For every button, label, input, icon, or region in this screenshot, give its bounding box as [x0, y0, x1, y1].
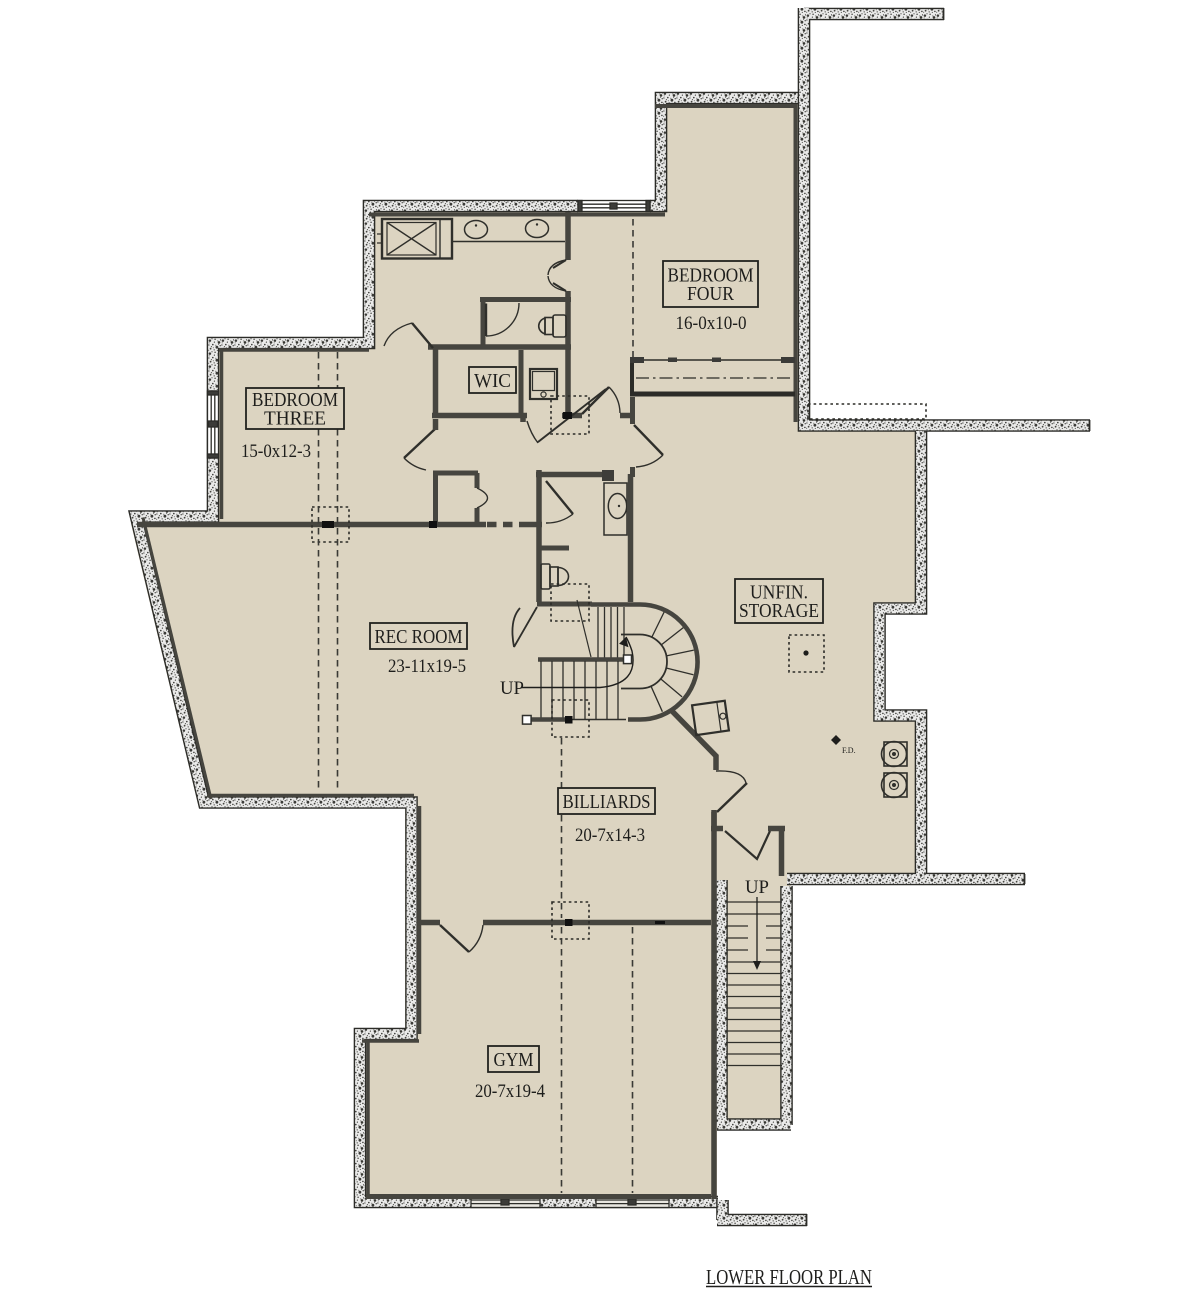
svg-text:BILLIARDS: BILLIARDS [563, 791, 651, 813]
svg-text:20-7x14-3: 20-7x14-3 [575, 825, 645, 846]
svg-text:UP: UP [745, 877, 769, 898]
svg-text:15-0x12-3: 15-0x12-3 [241, 441, 311, 462]
svg-text:FOUR: FOUR [687, 283, 735, 305]
svg-text:F.D.: F.D. [842, 746, 856, 755]
svg-text:16-0x10-0: 16-0x10-0 [676, 313, 747, 334]
svg-text:UP: UP [500, 678, 524, 699]
svg-text:THREE: THREE [264, 408, 326, 430]
svg-text:REC ROOM: REC ROOM [375, 626, 463, 648]
svg-text:20-7x19-4: 20-7x19-4 [475, 1081, 545, 1102]
svg-text:STORAGE: STORAGE [739, 600, 819, 622]
svg-text:23-11x19-5: 23-11x19-5 [388, 656, 466, 677]
svg-text:GYM: GYM [494, 1049, 534, 1071]
svg-text:WIC: WIC [474, 370, 511, 392]
svg-text:LOWER FLOOR PLAN: LOWER FLOOR PLAN [706, 1265, 872, 1289]
